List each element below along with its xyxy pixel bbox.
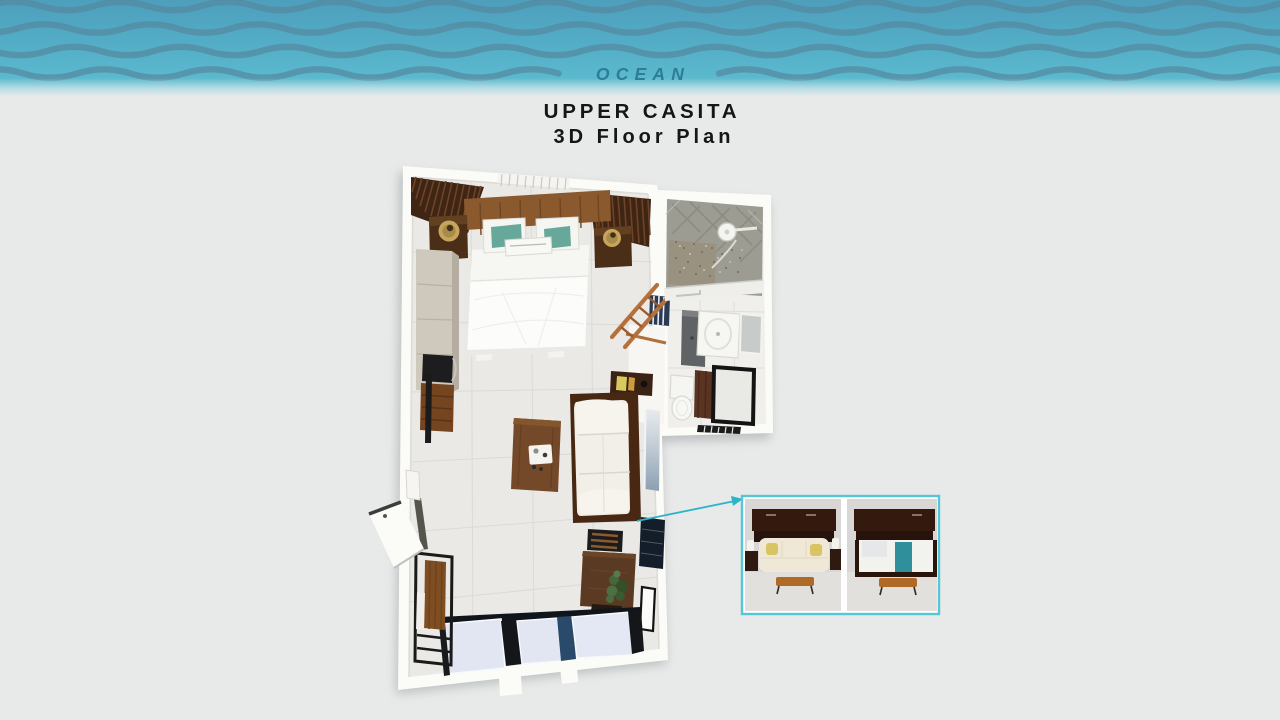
svg-text:OCEAN: OCEAN	[596, 64, 690, 84]
svg-text:UPPER CASITA: UPPER CASITA	[544, 100, 741, 123]
svg-text:3D Floor Plan: 3D Floor Plan	[554, 126, 735, 148]
